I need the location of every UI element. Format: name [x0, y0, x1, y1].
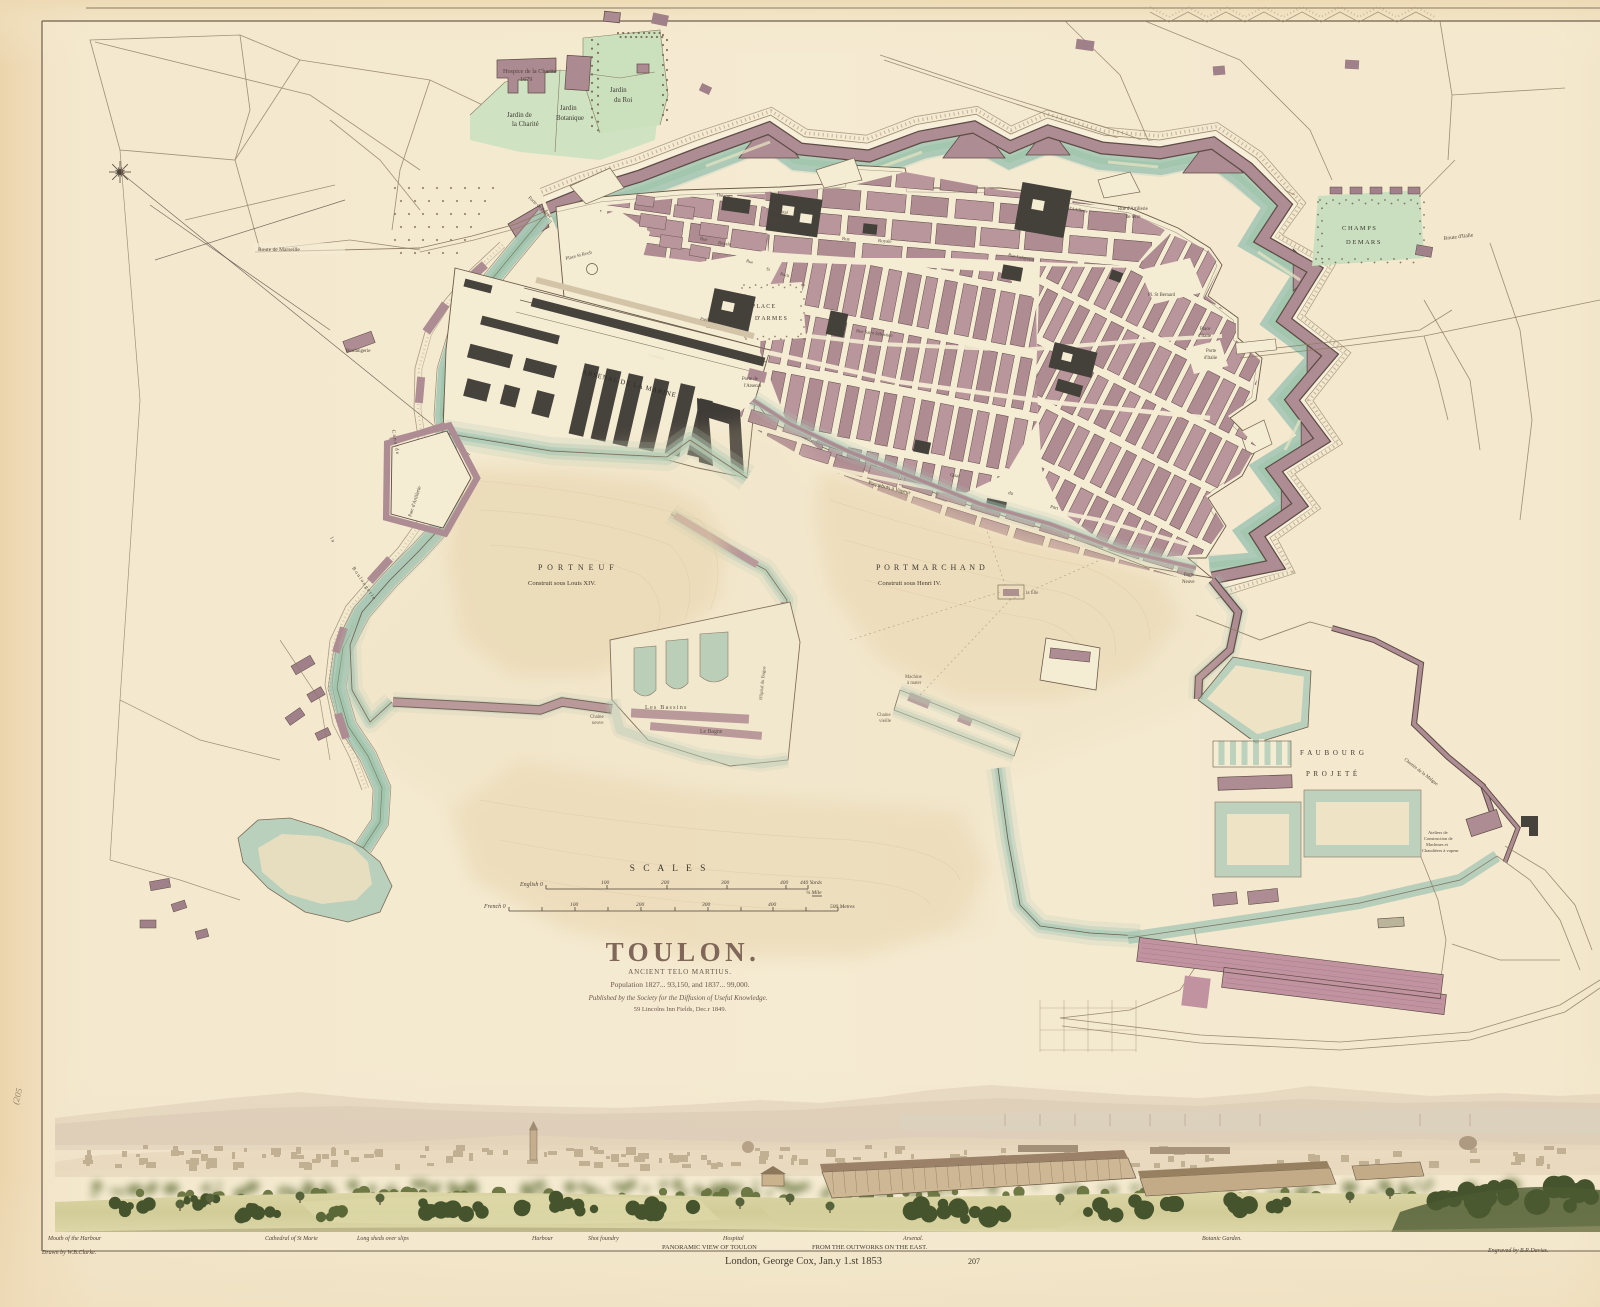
- svg-text:TOULON.: TOULON.: [606, 937, 761, 967]
- svg-text:Route de Marseille: Route de Marseille: [258, 247, 300, 253]
- svg-text:la Charité: la Charité: [512, 121, 539, 128]
- svg-text:Construction de: Construction de: [1424, 836, 1453, 841]
- svg-text:Botanique: Botanique: [556, 115, 584, 122]
- svg-text:Engraved by B.R.Davies.: Engraved by B.R.Davies.: [1487, 1248, 1548, 1254]
- svg-text:59 Lincolns Inn Fields, Dec.r: 59 Lincolns Inn Fields, Dec.r 1849.: [634, 1006, 727, 1013]
- svg-text:du Roi: du Roi: [614, 97, 632, 104]
- svg-text:de terre: de terre: [1126, 215, 1141, 220]
- svg-text:200: 200: [636, 902, 645, 908]
- svg-text:Harbour: Harbour: [531, 1236, 554, 1242]
- svg-text:Population 1827... 93,150, and: Population 1827... 93,150, and 1837... 9…: [611, 980, 750, 989]
- svg-text:Botanic Garden.: Botanic Garden.: [1202, 1236, 1242, 1242]
- svg-text:Hospital: Hospital: [722, 1236, 744, 1242]
- svg-text:d'Italie: d'Italie: [1198, 334, 1211, 339]
- svg-text:Long sheds over slips: Long sheds over slips: [356, 1236, 410, 1242]
- svg-text:Porte de: Porte de: [742, 377, 758, 382]
- svg-text:Hospice de la Charité: Hospice de la Charité: [503, 68, 557, 75]
- svg-text:1679: 1679: [520, 76, 532, 83]
- svg-text:S C A L E S: S C A L E S: [630, 864, 709, 874]
- svg-text:Chaudières à vapeur: Chaudières à vapeur: [1422, 848, 1459, 853]
- svg-text:Boulangerie: Boulangerie: [346, 349, 371, 354]
- svg-text:Neuve: Neuve: [1182, 580, 1195, 585]
- svg-text:P R O J E T É: P R O J E T É: [1306, 770, 1358, 778]
- svg-text:Shot foundry: Shot foundry: [588, 1235, 619, 1242]
- svg-text:Jardin de: Jardin de: [507, 112, 532, 119]
- svg-text:d'Italie: d'Italie: [1204, 356, 1217, 361]
- svg-text:D E M A R S: D E M A R S: [1346, 239, 1381, 246]
- svg-text:Drawn by W.B.Clarke.: Drawn by W.B.Clarke.: [41, 1250, 96, 1256]
- svg-text:Arsenal.: Arsenal.: [902, 1236, 923, 1242]
- svg-text:Jardin: Jardin: [610, 87, 627, 94]
- svg-text:Published by the Society for t: Published by the Society for the Diffusi…: [588, 994, 768, 1002]
- svg-text:F A U B O U R G: F A U B O U R G: [1300, 749, 1365, 757]
- svg-text:Porte: Porte: [1184, 573, 1194, 578]
- svg-text:French 0: French 0: [483, 904, 506, 910]
- svg-text:Pl. St Bernard: Pl. St Bernard: [1148, 293, 1176, 298]
- svg-text:207: 207: [968, 1257, 980, 1266]
- svg-text:Place: Place: [1200, 327, 1210, 332]
- svg-text:Rue d'Artillerie: Rue d'Artillerie: [1118, 207, 1148, 212]
- svg-text:P L A C E: P L A C E: [752, 304, 776, 310]
- svg-text:Royale: Royale: [878, 239, 892, 245]
- svg-text:300: 300: [701, 902, 711, 908]
- svg-text:C H A M P S: C H A M P S: [1342, 225, 1376, 232]
- svg-text:Jardin: Jardin: [560, 105, 577, 112]
- svg-text:PANORAMIC VIEW OF TOULON: PANORAMIC VIEW OF TOULON: [662, 1244, 757, 1251]
- svg-text:Construit sous Louis XIV.: Construit sous Louis XIV.: [528, 580, 596, 587]
- svg-text:P O R T N E U F: P O R T N E U F: [538, 563, 615, 572]
- svg-text:FROM THE OUTWORKS ON THE: FROM THE OUTWORKS ON THE EAST.: [812, 1244, 928, 1251]
- svg-text:London, George Cox, Jan.y 1.st: London, George Cox, Jan.y 1.st 1853: [725, 1256, 882, 1267]
- svg-text:Ateliers de: Ateliers de: [1428, 830, 1448, 835]
- svg-text:100: 100: [601, 880, 610, 886]
- svg-text:Machines et: Machines et: [1426, 842, 1449, 847]
- svg-text:Construit sous Henri IV.: Construit sous Henri IV.: [878, 580, 941, 587]
- svg-text:D' A R M E S: D' A R M E S: [755, 316, 787, 322]
- svg-text:ANCIENT TELO MARTIUS.: ANCIENT TELO MARTIUS.: [628, 968, 732, 976]
- svg-text:Rue: Rue: [842, 237, 850, 243]
- svg-text:Rue: Rue: [700, 236, 708, 242]
- svg-text:Porte: Porte: [1206, 349, 1216, 354]
- svg-text:100: 100: [570, 902, 579, 908]
- svg-text:300: 300: [720, 880, 730, 886]
- svg-text:200: 200: [661, 880, 670, 886]
- svg-text:l'Arsenal: l'Arsenal: [744, 384, 762, 389]
- svg-text:¼ Mile: ¼ Mile: [806, 890, 822, 896]
- svg-text:400: 400: [768, 901, 777, 908]
- svg-text:400: 400: [780, 879, 789, 886]
- svg-text:500 Metres: 500 Metres: [830, 904, 855, 910]
- svg-text:P O R T M A R C H A N D: P O R T M A R C H A N D: [876, 563, 986, 572]
- svg-text:Cathedral of St Marie: Cathedral of St Marie: [265, 1235, 318, 1242]
- svg-text:English 0: English 0: [519, 882, 543, 888]
- svg-text:440 Yards: 440 Yards: [800, 879, 822, 886]
- svg-text:Mouth of the Harbour: Mouth of the Harbour: [47, 1235, 102, 1242]
